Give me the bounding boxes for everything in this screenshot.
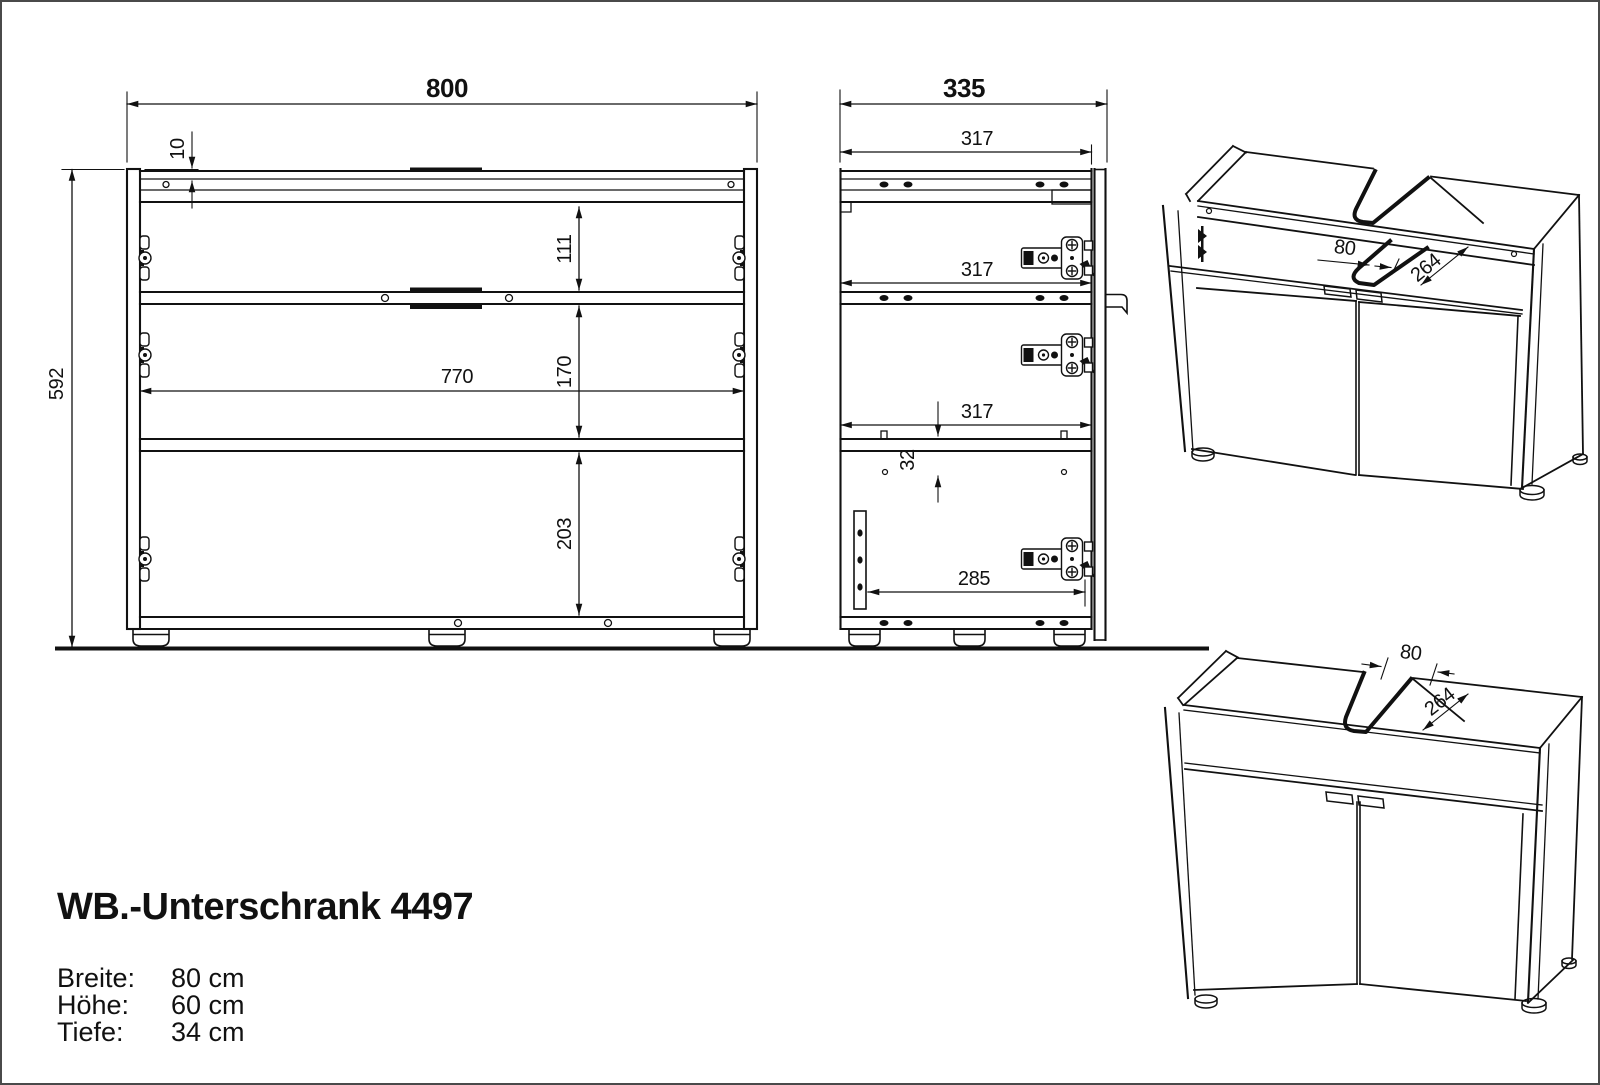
- dim-side-rail-top: 317: [841, 128, 1092, 164]
- side-feet: [849, 629, 1085, 646]
- iso-feet: [1195, 958, 1576, 1013]
- dim-front-lower-gap: 203: [554, 453, 579, 615]
- sink-cutout-top: [1345, 673, 1411, 732]
- spec-label: Höhe:: [57, 992, 171, 1019]
- svg-text:80: 80: [1333, 236, 1357, 260]
- drawing-sheet: 800 592 10 111 17: [0, 0, 1600, 1085]
- svg-text:10: 10: [167, 138, 189, 160]
- dim-front-middle-gap: 170: [554, 306, 579, 437]
- svg-text:800: 800: [426, 73, 468, 103]
- side-hinges: [1022, 237, 1096, 580]
- svg-text:264: 264: [1407, 249, 1446, 287]
- spec-list: Breite:80 cm Höhe:60 cm Tiefe:34 cm: [57, 965, 245, 1046]
- svg-text:317: 317: [961, 259, 993, 281]
- product-title: WB.-Unterschrank 4497: [57, 886, 473, 929]
- side-section-view: 335 317 317 317 32: [840, 73, 1127, 646]
- dim-front-height: 592: [46, 170, 124, 648]
- door-handle-profile: [1106, 295, 1127, 314]
- spec-label: Tiefe:: [57, 1019, 171, 1046]
- svg-text:32: 32: [897, 449, 919, 471]
- spec-value: 80 cm: [171, 963, 245, 993]
- dim-front-top-inset: 10: [145, 132, 198, 208]
- svg-text:285: 285: [958, 568, 990, 590]
- spec-row-height: Höhe:60 cm: [57, 992, 245, 1019]
- mounting-bracket: [854, 511, 866, 609]
- dim-front-width: 800: [127, 73, 757, 162]
- spec-row-depth: Tiefe:34 cm: [57, 1019, 245, 1046]
- svg-text:317: 317: [961, 128, 993, 150]
- spec-value: 34 cm: [171, 1017, 245, 1047]
- perspective-view-closed: 80 264: [1165, 641, 1582, 1013]
- svg-text:203: 203: [554, 518, 576, 550]
- svg-text:770: 770: [441, 366, 473, 388]
- svg-text:264: 264: [1421, 683, 1460, 720]
- right-side-panel: [744, 169, 757, 629]
- spec-label: Breite:: [57, 965, 171, 992]
- dim-side-rail-low: 317: [841, 401, 1092, 425]
- front-elevation-view: 800 592 10 111 17: [46, 73, 757, 647]
- svg-text:317: 317: [961, 401, 993, 423]
- dim-front-inner-width: 770: [140, 366, 744, 391]
- front-feet: [133, 629, 750, 646]
- svg-text:592: 592: [46, 368, 68, 400]
- hinge-marks: [1198, 226, 1207, 262]
- svg-text:80: 80: [1399, 641, 1423, 665]
- iso-feet: [1192, 448, 1587, 500]
- svg-text:335: 335: [943, 73, 985, 103]
- svg-text:111: 111: [554, 234, 576, 263]
- dim-side-base-depth: 285: [868, 568, 1085, 606]
- sink-cutout-top: [1355, 171, 1428, 223]
- door-handles: [1326, 792, 1384, 808]
- spec-value: 60 cm: [171, 990, 245, 1020]
- dim-iso-front-cutout-width: 80: [1362, 641, 1454, 685]
- dim-iso-top-cutout-depth: 264: [1407, 247, 1468, 287]
- left-side-panel: [127, 169, 140, 629]
- svg-text:170: 170: [554, 356, 576, 388]
- side-door: [1095, 169, 1128, 640]
- dim-front-upper-gap: 111: [554, 207, 579, 290]
- perspective-view-open: 80 264: [1163, 146, 1587, 500]
- spec-row-width: Breite:80 cm: [57, 965, 245, 992]
